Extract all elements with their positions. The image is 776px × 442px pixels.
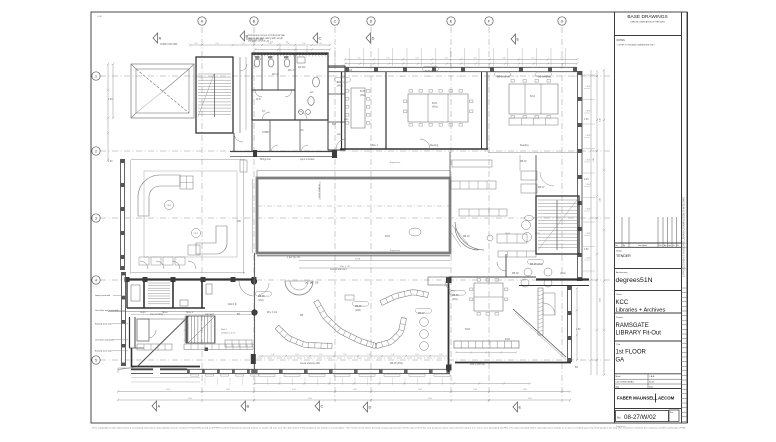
svg-text:8.00: 8.00 <box>528 398 532 400</box>
svg-text:1.50: 1.50 <box>194 43 197 45</box>
svg-text:Reading: Reading <box>520 145 529 147</box>
svg-text:1.50: 1.50 <box>357 57 360 59</box>
svg-text:CORE TOP ARR: CORE TOP ARR <box>160 43 178 46</box>
svg-text:1.50: 1.50 <box>215 43 218 45</box>
svg-text:(2No): (2No) <box>560 273 566 275</box>
svg-text:(1No): (1No) <box>258 300 264 302</box>
svg-text:Architecture: Architecture <box>616 271 628 274</box>
svg-text:1.5K.B: 1.5K.B <box>586 233 591 235</box>
svg-text:mat well: mat well <box>205 313 214 316</box>
svg-text:1.50: 1.50 <box>319 354 322 356</box>
svg-text:08-27/W/02: 08-27/W/02 <box>624 414 657 421</box>
svg-text:3: 3 <box>95 217 97 221</box>
svg-text:1500mm 1 hr fw: 1500mm 1 hr fw <box>221 333 236 335</box>
svg-text:(2No): (2No) <box>452 299 458 301</box>
svg-text:B-05 (14No): B-05 (14No) <box>425 71 438 73</box>
svg-text:1.5K.B: 1.5K.B <box>586 258 591 260</box>
svg-text:DB-01: DB-01 <box>194 233 199 235</box>
svg-text:A: A <box>159 36 162 41</box>
svg-text:1.50: 1.50 <box>584 249 589 251</box>
svg-text:B-06: B-06 <box>505 339 511 341</box>
svg-text:riser: riser <box>344 118 349 121</box>
svg-text:B03: B03 <box>348 70 353 72</box>
svg-text:1.50: 1.50 <box>576 329 581 331</box>
svg-text:3.00: 3.00 <box>523 389 527 391</box>
svg-text:1.50: 1.50 <box>386 57 389 59</box>
svg-text:750 B: 750 B <box>355 259 361 261</box>
svg-text:Stair 1: Stair 1 <box>221 328 228 331</box>
svg-text:1.50: 1.50 <box>560 57 563 59</box>
svg-text:1.50: 1.50 <box>343 354 346 356</box>
svg-text:2: 2 <box>95 150 97 154</box>
svg-text:CLN: CLN <box>256 99 261 101</box>
svg-text:1.50: 1.50 <box>415 354 418 356</box>
svg-text:E: E <box>519 405 522 410</box>
svg-text:2.20: 2.20 <box>108 99 113 101</box>
svg-text:1.5K.B: 1.5K.B <box>586 184 591 186</box>
svg-text:KCC: KCC <box>616 300 629 306</box>
svg-text:1.5K.B: 1.5K.B <box>586 135 591 137</box>
svg-text:C: C <box>319 36 322 41</box>
svg-text:Libraries + Archives: Libraries + Archives <box>616 307 666 313</box>
svg-text:Project: Project <box>616 316 623 319</box>
svg-text:Joinery area wall: Joinery area wall <box>95 295 111 297</box>
svg-text:drainage conduit Lrg: drainage conduit Lrg <box>248 40 270 43</box>
svg-text:3.00: 3.00 <box>292 389 296 391</box>
svg-text:WC 3: WC 3 <box>288 70 294 72</box>
svg-text:4.50: 4.50 <box>108 161 113 163</box>
svg-text:1.50: 1.50 <box>584 119 589 121</box>
svg-text:No: No <box>615 245 617 247</box>
svg-text:DB: DB <box>300 315 304 317</box>
svg-text:(4No): (4No) <box>432 107 438 109</box>
svg-text:1.50: 1.50 <box>473 57 476 59</box>
svg-text:LOBBY: LOBBY <box>262 132 270 134</box>
svg-text:USED IN COMPILATION OF THIS DW: USED IN COMPILATION OF THIS DWG <box>630 21 665 24</box>
svg-text:Meeting: Meeting <box>430 144 439 147</box>
svg-text:DIM 4 (mtr ref): DIM 4 (mtr ref) <box>470 363 485 366</box>
svg-text:8.00: 8.00 <box>308 398 312 400</box>
svg-text:1.50: 1.50 <box>429 76 432 78</box>
svg-text:1.50: 1.50 <box>502 57 505 59</box>
svg-text:C: C <box>334 20 337 24</box>
svg-text:B-05: B-05 <box>432 103 438 105</box>
svg-text:Ap: Ap <box>664 244 666 247</box>
svg-text:Client: Client <box>616 293 622 296</box>
svg-text:Store 2: Store 2 <box>186 311 194 314</box>
svg-text:GA: GA <box>616 358 625 364</box>
svg-text:WC1: WC1 <box>256 59 262 61</box>
svg-text:Expansion: Expansion <box>390 162 401 164</box>
svg-text:B: B <box>247 404 250 409</box>
svg-text:NOTES: NOTES <box>617 39 626 42</box>
svg-text:1.50: 1.50 <box>458 76 461 78</box>
svg-text:2.40: 2.40 <box>584 179 589 181</box>
svg-text:DA WC: DA WC <box>298 66 306 69</box>
svg-text:1.50: 1.50 <box>295 354 298 356</box>
svg-text:B-06: B-06 <box>337 82 343 84</box>
svg-text:1. WORK TO FIGURED DIMENSIONS: 1. WORK TO FIGURED DIMENSIONS ONLY <box>617 45 656 47</box>
svg-text:A: A <box>158 404 161 409</box>
svg-text:Rev: Rev <box>670 412 673 414</box>
svg-text:1.50: 1.50 <box>444 57 447 59</box>
svg-text:No.: No. <box>617 416 622 420</box>
svg-text:Scale: Scale <box>649 382 655 384</box>
svg-text:BASE DRAWINGS: BASE DRAWINGS <box>627 14 667 20</box>
svg-text:1.50: 1.50 <box>371 76 374 78</box>
svg-text:5: 5 <box>95 359 97 363</box>
svg-text:Description: Description <box>638 244 647 247</box>
svg-text:C.A.B.: C.A.B. <box>649 375 655 378</box>
svg-text:1.5K.B: 1.5K.B <box>586 209 591 211</box>
svg-text:1.50: 1.50 <box>516 76 519 78</box>
svg-text:Made: Made <box>616 376 622 378</box>
svg-text:1.50: 1.50 <box>367 354 370 356</box>
svg-text:(4No): (4No) <box>360 95 366 97</box>
svg-text:1.50: 1.50 <box>268 43 271 45</box>
svg-text:TENDER: TENDER <box>616 254 631 258</box>
svg-text:1.50: 1.50 <box>286 43 289 45</box>
svg-text:Wall 1 hr: Wall 1 hr <box>228 303 237 306</box>
svg-text:1.5K.B: 1.5K.B <box>586 160 591 162</box>
svg-text:1.50: 1.50 <box>400 76 403 78</box>
svg-text:3.00: 3.00 <box>353 389 357 391</box>
svg-text:D: D <box>372 36 375 41</box>
svg-text:4: 4 <box>95 279 97 283</box>
svg-text:WC: WC <box>300 130 304 132</box>
svg-text:(4No): (4No) <box>337 86 343 88</box>
svg-text:Chk: Chk <box>659 245 662 247</box>
svg-text:3.00: 3.00 <box>166 389 170 391</box>
svg-text:8.00: 8.00 <box>428 398 432 400</box>
svg-text:1.50: 1.50 <box>600 118 602 121</box>
svg-text:(14B): (14B) <box>355 310 361 312</box>
svg-text:B-05 1 BAY A: B-05 1 BAY A <box>318 184 321 198</box>
svg-text:Dim 4 Jim: Dim 4 Jim <box>267 312 277 314</box>
svg-text:B-04: B-04 <box>530 96 536 98</box>
svg-text:DB-06 (2No): DB-06 (2No) <box>497 77 510 79</box>
svg-text:1.50: 1.50 <box>600 298 602 301</box>
svg-text:1.5K.B: 1.5K.B <box>586 111 591 113</box>
svg-text:Ap: Ap <box>669 244 671 247</box>
svg-text:Existing stone wall: Existing stone wall <box>95 350 112 353</box>
svg-text:1.50: 1.50 <box>271 354 274 356</box>
svg-text:WC 2: WC 2 <box>272 74 278 76</box>
svg-text:1 per (4) 1 B: 1 per (4) 1 B <box>287 256 300 259</box>
svg-text:D: D <box>369 405 372 410</box>
svg-text:Office 1: Office 1 <box>370 145 379 147</box>
svg-text:2.40: 2.40 <box>600 198 602 201</box>
svg-text:J:\PROJECTS\08-27 RAMSGATE LIB: J:\PROJECTS\08-27 RAMSGATE LIBRARY\DRAWI… <box>683 197 686 277</box>
svg-text:met on lobby: met on lobby <box>150 313 164 316</box>
svg-text:3.00: 3.00 <box>226 389 230 391</box>
svg-text:1.50: 1.50 <box>415 57 418 59</box>
svg-text:1.50: 1.50 <box>531 57 534 59</box>
svg-text:1.50: 1.50 <box>241 43 244 45</box>
svg-text:LIBRARY Fit-Out: LIBRARY Fit-Out <box>616 330 662 336</box>
svg-text:3.00: 3.00 <box>418 389 422 391</box>
svg-text:Expansion: Expansion <box>390 250 401 252</box>
svg-text:1.50: 1.50 <box>302 43 305 45</box>
svg-text:1.50: 1.50 <box>574 76 577 78</box>
svg-text:B-05: B-05 <box>385 236 391 238</box>
svg-text:1.50: 1.50 <box>439 354 442 356</box>
svg-text:Line of wall over: Line of wall over <box>330 268 347 271</box>
svg-text:2No. 1 1 B: 2No. 1 1 B <box>340 266 350 268</box>
svg-text:Existing stone wall: Existing stone wall <box>95 323 112 326</box>
svg-text:duct: duct <box>337 133 342 136</box>
svg-text:1st FLOOR: 1st FLOOR <box>616 350 647 356</box>
svg-text:Status: Status <box>616 250 623 253</box>
svg-text:FABER MAUNSELL: FABER MAUNSELL <box>617 396 658 401</box>
svg-text:Chk'd JH/WL/JM/AG: Chk'd JH/WL/JM/AG <box>616 381 635 384</box>
svg-text:B-05: B-05 <box>360 91 366 93</box>
svg-text:This copyright in this documen: This copyright in this document if issue… <box>92 427 687 430</box>
svg-text:B-05: B-05 <box>465 329 471 331</box>
svg-text:By: By <box>623 245 625 247</box>
svg-text:open to below: open to below <box>300 158 315 161</box>
svg-text:Continuous screen of horizonta: Continuous screen of horizontal oak <box>248 34 285 37</box>
svg-text:DB-03: DB-03 <box>463 236 470 238</box>
svg-text:Linear shelving 900: Linear shelving 900 <box>300 362 321 365</box>
svg-text:3.00: 3.00 <box>473 389 477 391</box>
svg-text:1.50: 1.50 <box>318 43 321 45</box>
svg-text:DB-01: DB-01 <box>167 205 172 207</box>
svg-text:E: E <box>517 37 520 42</box>
svg-text:degrees51N: degrees51N <box>616 277 653 284</box>
svg-text:Cupb: Cupb <box>140 312 146 314</box>
svg-text:8.00: 8.00 <box>188 398 192 400</box>
svg-text:1: 1 <box>95 75 97 79</box>
svg-text:D: D <box>370 20 373 24</box>
svg-text:1.5K.B: 1.5K.B <box>586 86 591 88</box>
svg-text:DB-07: DB-07 <box>538 187 545 189</box>
svg-text:(A) - DB: (A) - DB <box>310 282 319 285</box>
svg-text:AECOM: AECOM <box>658 396 675 401</box>
svg-text:DB-09: DB-09 <box>512 273 519 275</box>
svg-text:DB-02: DB-02 <box>520 161 527 163</box>
svg-text:C: C <box>321 404 324 409</box>
svg-text:Bridge link: Bridge link <box>260 158 272 161</box>
svg-text:Line of fire wall under: Line of fire wall under <box>95 340 114 342</box>
svg-text:B03: B03 <box>332 124 337 126</box>
svg-text:DB-05 (4No): DB-05 (4No) <box>390 363 403 365</box>
svg-text:G: G <box>561 20 564 24</box>
svg-text:RAMSGATE: RAMSGATE <box>616 323 649 329</box>
svg-text:1.50: 1.50 <box>391 354 394 356</box>
svg-text:4.15: 4.15 <box>593 158 595 161</box>
svg-text:1.50: 1.50 <box>487 76 490 78</box>
svg-text:slats to link with ceiling wit: slats to link with ceiling with acrylic <box>248 37 284 40</box>
svg-text:DB-06 (2No): DB-06 (2No) <box>538 77 551 79</box>
